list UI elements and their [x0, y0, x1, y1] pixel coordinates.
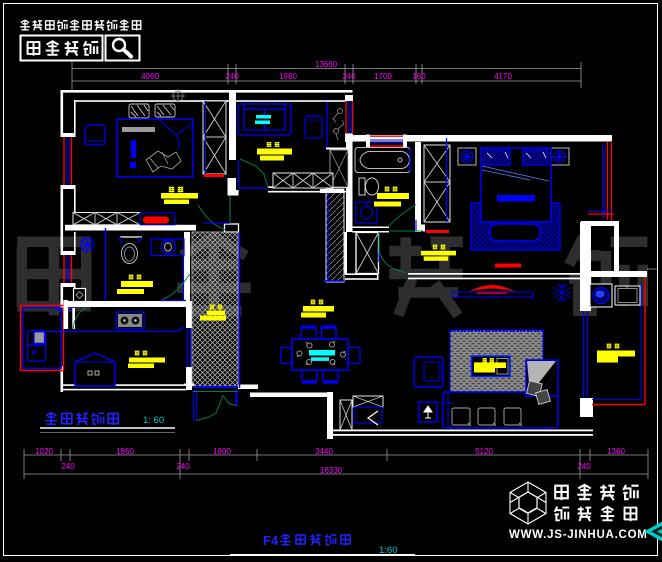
svg-text:1860: 1860: [116, 447, 134, 456]
svg-text:240: 240: [342, 72, 356, 81]
svg-text:1360: 1360: [607, 447, 625, 456]
svg-text:16330: 16330: [320, 466, 343, 475]
svg-text:240: 240: [176, 462, 190, 471]
svg-text:F4: F4: [263, 533, 279, 548]
svg-text:160: 160: [412, 72, 426, 81]
svg-text:4170: 4170: [494, 72, 512, 81]
svg-text:5120: 5120: [475, 447, 493, 456]
svg-text:3440: 3440: [315, 447, 333, 456]
svg-text:240: 240: [61, 462, 75, 471]
svg-text:4060: 4060: [141, 72, 159, 81]
svg-text:1020: 1020: [35, 447, 53, 456]
svg-text:1800: 1800: [213, 447, 231, 456]
svg-text:WWW.JS-JINHUA.COM: WWW.JS-JINHUA.COM: [509, 529, 648, 541]
svg-text:1: 60: 1: 60: [143, 415, 164, 426]
svg-text:240: 240: [225, 72, 239, 81]
svg-text:13660: 13660: [315, 60, 338, 69]
svg-text:240: 240: [577, 462, 591, 471]
svg-text:1700: 1700: [374, 72, 392, 81]
svg-text:1960: 1960: [279, 72, 297, 81]
